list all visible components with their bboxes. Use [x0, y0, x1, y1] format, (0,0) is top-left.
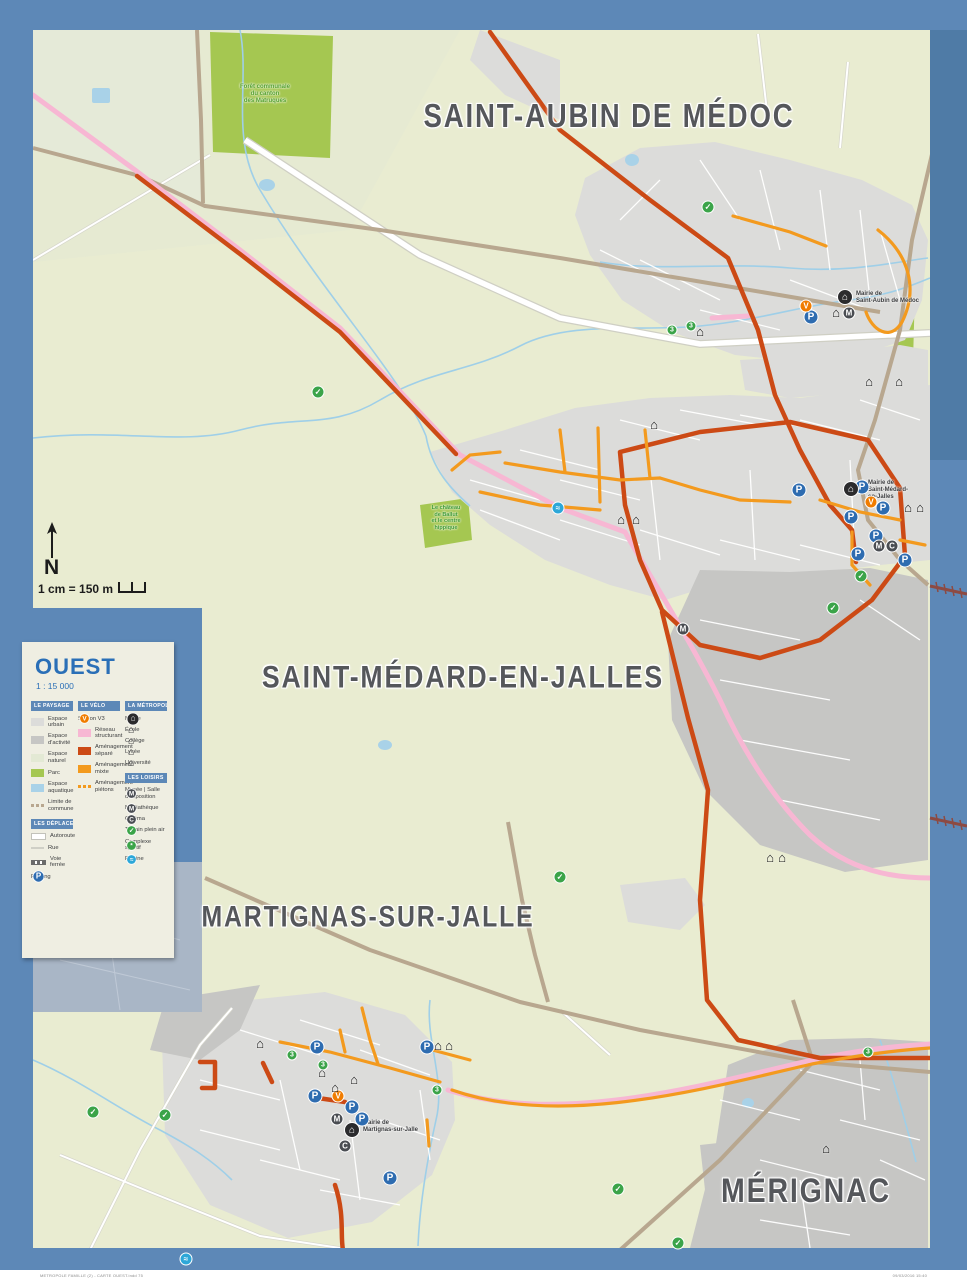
print-footer-left: METROPOLE FAMILLE (2) - CARTE OUEST.indd…	[40, 1273, 143, 1278]
legend-item-label: Limite de commune	[48, 799, 73, 812]
legend-swatch	[31, 769, 44, 777]
legend-item: Réseau structurant	[78, 727, 120, 740]
legend-item: PParking	[31, 874, 73, 881]
legend-item: VStation V3	[78, 716, 120, 723]
legend-swatch	[78, 729, 91, 737]
legend-item: CCinéma	[125, 816, 167, 823]
map-canvas	[0, 0, 967, 1281]
legend-item: Limite de commune	[31, 799, 73, 812]
legend-item-label: Voie ferrée	[50, 856, 73, 869]
legend-panel: OUEST 1 : 15 000 LE PAYSAGEEspace urbain…	[22, 642, 174, 958]
legend-swatch	[31, 718, 44, 726]
legend-item: ⌂Collège	[125, 738, 167, 745]
legend-item: ✓Terrain plein air	[125, 827, 167, 834]
legend-item: ⌂Mairie	[125, 716, 167, 723]
legend-item: MMédiathèque	[125, 805, 167, 812]
legend-item: Rue	[31, 845, 73, 852]
v3-icon: V	[79, 714, 89, 724]
legend-item: Aménagement piétons	[78, 780, 120, 793]
school-icon: ⌂	[126, 759, 136, 769]
compass: N	[40, 522, 64, 587]
legend-item: ⌂École	[125, 727, 167, 734]
legend-section-header: LE VÉLO	[78, 701, 120, 711]
scale-text: 1 cm = 150 m	[38, 582, 113, 596]
legend-title: OUEST	[35, 654, 174, 680]
legend-item: Aménagement mixte	[78, 762, 120, 775]
mediatheque-icon: M	[126, 803, 136, 813]
legend-item-label: Espace aquatique	[48, 781, 73, 794]
legend-item: Aménagement séparé	[78, 744, 120, 757]
legend-item: MMusée | Salle d'exposition	[125, 787, 167, 800]
legend-column: LE PAYSAGEEspace urbainEspace d'activité…	[31, 695, 73, 885]
legend-swatch	[31, 736, 44, 744]
piscine-icon: ≈	[126, 855, 136, 865]
legend-columns: LE PAYSAGEEspace urbainEspace d'activité…	[22, 693, 174, 885]
legend-item: *Complexe sportif	[125, 839, 167, 852]
legend-item-label: Réseau structurant	[95, 727, 120, 740]
legend-item-label: Espace naturel	[48, 751, 73, 764]
compass-north-letter: N	[44, 556, 59, 580]
legend-item: Autoroute	[31, 833, 73, 840]
legend-item: Espace urbain	[31, 716, 73, 729]
legend-section-header: LES DÉPLACEMENTS	[31, 819, 73, 829]
cinema-icon: C	[126, 814, 136, 824]
legend-section-header: LA MÉTROPOLE	[125, 701, 167, 711]
legend-swatch	[31, 833, 46, 840]
legend-item-label: Rue	[48, 845, 73, 852]
legend-swatch	[31, 860, 46, 865]
legend-item: ⌂Université	[125, 760, 167, 767]
school-icon: ⌂	[126, 736, 136, 746]
legend-swatch	[78, 765, 91, 773]
legend-item-label: Espace urbain	[48, 716, 73, 729]
legend-section-header: LES LOISIRS	[125, 773, 167, 783]
legend-item: ⌂Lycée	[125, 749, 167, 756]
school-icon: ⌂	[126, 725, 136, 735]
legend-item: ≈Piscine	[125, 856, 167, 863]
legend-item-label: Autoroute	[50, 833, 73, 840]
legend-item-label: Aménagement séparé	[95, 744, 120, 757]
legend-swatch	[31, 847, 44, 849]
legend-item-label: Aménagement piétons	[95, 780, 120, 793]
print-footer-right: 09/03/2016 15:40	[893, 1273, 927, 1278]
legend-column: LE VÉLOVStation V3Réseau structurantAmén…	[78, 695, 120, 885]
legend-item: Parc	[31, 769, 73, 777]
legend-scale-ratio: 1 : 15 000	[36, 681, 174, 691]
legend-swatch	[78, 747, 91, 755]
legend-item: Espace naturel	[31, 751, 73, 764]
sport2-icon: *	[126, 840, 136, 850]
legend-item: Espace d'activité	[31, 733, 73, 746]
legend-swatch	[78, 785, 91, 788]
parking-icon: P	[33, 871, 45, 883]
sport-icon: ✓	[126, 826, 136, 836]
legend-swatch	[31, 754, 44, 762]
legend-swatch	[31, 784, 44, 792]
legend-item: Voie ferrée	[31, 856, 73, 869]
scale-bar	[118, 582, 146, 596]
legend-swatch	[31, 804, 44, 807]
scale-indicator: 1 cm = 150 m	[38, 582, 146, 596]
legend-section-header: LE PAYSAGE	[31, 701, 73, 711]
legend-item-label: Espace d'activité	[48, 733, 73, 746]
map-page: SAINT-AUBIN DE MÉDOCSAINT-MÉDARD-EN-JALL…	[0, 0, 967, 1281]
legend-item-label: Aménagement mixte	[95, 762, 120, 775]
legend-item: Espace aquatique	[31, 781, 73, 794]
legend-item-label: Parc	[48, 770, 73, 777]
legend-column: LA MÉTROPOLE⌂Mairie⌂École⌂Collège⌂Lycée⌂…	[125, 695, 167, 885]
print-footer: METROPOLE FAMILLE (2) - CARTE OUEST.indd…	[0, 1270, 967, 1281]
